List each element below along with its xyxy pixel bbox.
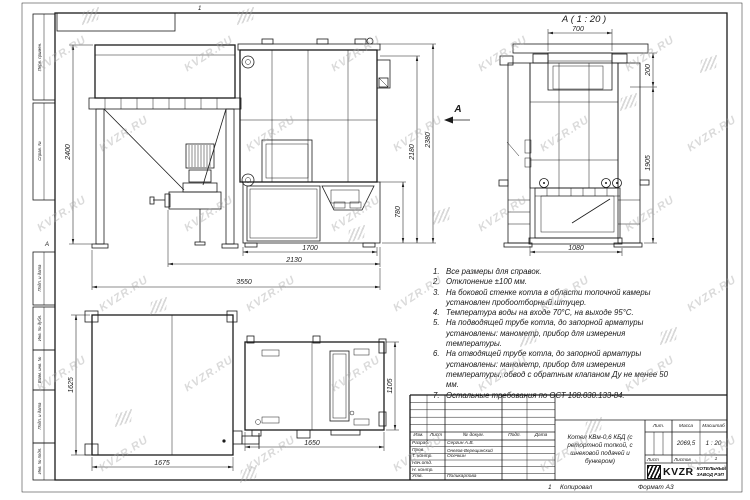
drawing-sheet: 1 А Перв. примен. Справ. № Подп. и дата … <box>0 0 750 500</box>
footer-copied: Копировал <box>560 482 605 492</box>
stamp-inv-dubl: Инв. № дубл. <box>37 315 42 341</box>
col-date: Дата <box>527 431 555 440</box>
svg-text:2130: 2130 <box>285 257 302 264</box>
drawing-title: Котел КВм-0,6 КБД (с ретортной топкой, с… <box>556 421 644 479</box>
svg-text:200: 200 <box>645 64 652 77</box>
footer-zone: 1 <box>548 482 556 492</box>
note-3: 3.На боковой стенке котла в области топо… <box>433 288 673 309</box>
svg-text:1650: 1650 <box>304 440 320 447</box>
svg-text:3550: 3550 <box>236 279 252 286</box>
view-plan: 1625 1675 1650 1105 <box>68 311 399 471</box>
dim-700: 700 <box>548 26 612 51</box>
name-utv: Поликарпова <box>445 473 504 480</box>
dim-1650: 1650 <box>245 432 384 451</box>
svg-text:2380: 2380 <box>425 132 432 149</box>
stamp-perv-primen: Перв. примен. <box>37 43 42 72</box>
dim-1080: 1080 <box>530 245 622 256</box>
company-name: КОТЕЛЬНЫЙ ЗАВОД РЭП <box>697 466 726 476</box>
frame-stamp-boxes: Перв. примен. Справ. № Подп. и дата Инв.… <box>33 14 55 480</box>
col-izm: Изм. <box>410 431 427 440</box>
sheet-frame: 1 А Перв. примен. Справ. № Подп. и дата … <box>22 3 742 492</box>
dim-2400: 2400 <box>65 45 93 244</box>
stamp-vzam-inv: Взам. инв. № <box>37 356 42 383</box>
sheet-label: Лист <box>645 455 674 463</box>
view-side: 2400 2180 2380 780 1700 <box>65 38 470 290</box>
col-podp: Подп. <box>502 431 527 440</box>
dim-1905: 1905 <box>644 87 657 243</box>
dim-780: 780 <box>380 182 406 243</box>
note-6: 6.На отводящей трубе котла, до запорной … <box>433 349 673 390</box>
footer-format: Формат А3 <box>638 482 688 492</box>
svg-text:1905: 1905 <box>645 155 652 171</box>
svg-text:2400: 2400 <box>65 144 72 161</box>
svg-text:780: 780 <box>395 206 402 218</box>
note-5: 5.На подводящей трубе котла, до запорной… <box>433 318 673 349</box>
zone-marker-left: А <box>44 242 49 248</box>
section-arrow-a: А <box>444 104 470 124</box>
note-7: 7.Остальные требования по ОСТ 108.030.13… <box>433 391 673 401</box>
sheets-value: 1 <box>705 455 727 463</box>
kvzr-logo-text: KVZR <box>663 466 694 478</box>
col-list: Лист <box>427 431 445 440</box>
svg-text:1700: 1700 <box>302 245 318 252</box>
scale-value: 1 : 20 <box>700 432 727 455</box>
svg-text:1080: 1080 <box>568 245 584 252</box>
dim-1105: 1105 <box>386 342 399 430</box>
stamp-sprav-no: Справ. № <box>37 141 42 161</box>
role-utv: Утв. <box>410 473 447 480</box>
note-4: 4.Температура воды на входе 70°С, на вых… <box>433 308 673 318</box>
stamp-podp-data-1: Подп. и дата <box>37 264 42 292</box>
col-docnum: № докум. <box>445 431 502 440</box>
company-block: KVZR КОТЕЛЬНЫЙ ЗАВОД РЭП <box>647 464 726 479</box>
scale-label: Масштаб <box>700 420 727 432</box>
dim-200: 200 <box>630 53 657 87</box>
zone-marker-top: 1 <box>198 6 201 12</box>
stamp-inv-podl: Инв. № подл. <box>37 448 42 475</box>
svg-text:2180: 2180 <box>409 144 416 161</box>
svg-text:1675: 1675 <box>154 460 170 467</box>
lit-label: Лит. <box>645 420 672 432</box>
note-2: 2.Отклонение ±100 мм. <box>433 277 673 287</box>
dim-3550: 3550 <box>92 250 380 290</box>
svg-text:А: А <box>453 104 461 115</box>
rear-view-title: А ( 1 : 20 ) <box>561 14 606 25</box>
mass-label: Масса <box>672 420 700 432</box>
technical-notes: 1.Все размеры для справок. 2.Отклонение … <box>433 267 673 401</box>
sheets-label: Листов <box>672 455 707 463</box>
mass-value: 2069,5 <box>672 432 700 455</box>
kvzr-logo-icon <box>647 465 661 479</box>
dim-2380: 2380 <box>380 44 436 243</box>
svg-text:1625: 1625 <box>68 377 75 393</box>
note-1: 1.Все размеры для справок. <box>433 267 673 277</box>
svg-text:1105: 1105 <box>387 378 394 393</box>
dim-1625: 1625 <box>68 315 90 455</box>
dim-1700: 1700 <box>243 245 377 256</box>
svg-text:700: 700 <box>572 26 584 33</box>
stamp-podp-data-2: Подп. и дата <box>37 402 42 430</box>
dim-1675: 1675 <box>92 457 233 471</box>
view-rear: А ( 1 : 20 ) <box>499 14 657 256</box>
